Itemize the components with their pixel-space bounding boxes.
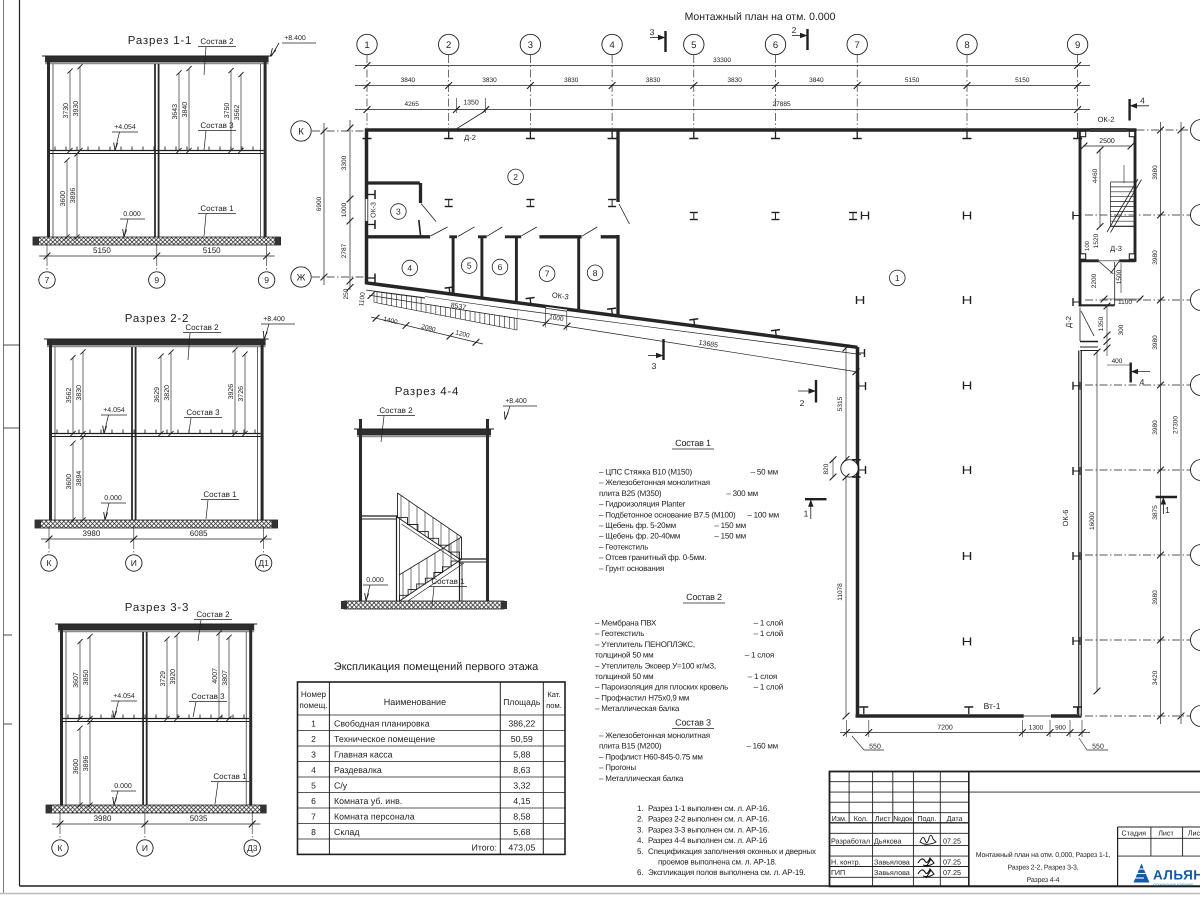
svg-text:1100: 1100 [1118, 299, 1132, 306]
svg-text:3840: 3840 [809, 77, 824, 84]
svg-text:Состав 1: Состав 1 [675, 438, 711, 448]
svg-text:6: 6 [773, 40, 778, 51]
svg-text:4265: 4265 [404, 101, 419, 108]
svg-text:4: 4 [311, 765, 316, 775]
svg-text:Свободная планировка: Свободная планировка [334, 718, 430, 728]
svg-text:3562: 3562 [234, 105, 241, 121]
svg-text:9: 9 [264, 275, 269, 285]
svg-text:1300: 1300 [1029, 725, 1044, 732]
svg-text:9: 9 [1075, 40, 1080, 51]
svg-text:пом.: пом. [546, 701, 562, 710]
svg-text:3980: 3980 [1152, 335, 1159, 350]
svg-text:Состав 3: Состав 3 [191, 692, 225, 701]
svg-text:3,32: 3,32 [513, 780, 530, 790]
svg-text:2: 2 [446, 40, 451, 51]
svg-text:Техническое помещение: Техническое помещение [334, 734, 435, 744]
svg-text:7200: 7200 [937, 725, 953, 732]
svg-text:4460: 4460 [1092, 168, 1099, 183]
svg-text:3980: 3980 [83, 529, 101, 538]
svg-text:Д1: Д1 [258, 558, 269, 568]
svg-text:Склад: Склад [334, 827, 359, 837]
svg-text:2500: 2500 [1099, 138, 1115, 145]
svg-text:3: 3 [528, 40, 533, 51]
svg-text:100: 100 [1084, 240, 1091, 251]
svg-text:Монтажный план на отм. 0.000: Монтажный план на отм. 0.000 [685, 11, 836, 23]
svg-text:Подп.: Подп. [917, 814, 936, 823]
svg-text:Состав 2: Состав 2 [686, 592, 722, 602]
svg-text:1: 1 [895, 273, 900, 283]
svg-text:3875: 3875 [1152, 505, 1159, 520]
svg-text:900: 900 [1055, 725, 1066, 732]
svg-text:16000: 16000 [1089, 512, 1096, 530]
svg-text:Состав 2: Состав 2 [196, 610, 230, 619]
svg-text:+8.400: +8.400 [505, 398, 527, 405]
svg-text:Состав 1: Состав 1 [200, 204, 234, 213]
svg-text:И: И [142, 843, 148, 853]
svg-text:3562: 3562 [66, 388, 73, 404]
svg-text:0.000: 0.000 [104, 495, 122, 502]
svg-text:1: 1 [311, 718, 316, 728]
svg-text:3300: 3300 [341, 155, 348, 170]
svg-text:3920: 3920 [170, 669, 177, 685]
svg-text:Состав 1: Состав 1 [213, 772, 247, 781]
svg-text:50,59: 50,59 [511, 734, 533, 744]
svg-text:толщиной 50 мм: толщиной 50 мм [595, 672, 653, 681]
svg-text:Лист: Лист [875, 814, 891, 823]
svg-text:2: 2 [311, 734, 316, 744]
svg-text:1: 1 [364, 40, 369, 51]
svg-text:+8.400: +8.400 [284, 35, 306, 42]
svg-text:4,15: 4,15 [513, 796, 530, 806]
svg-text:5,88: 5,88 [513, 749, 530, 759]
svg-text:3820: 3820 [164, 385, 171, 401]
svg-text:ГИП: ГИП [831, 868, 845, 877]
svg-text:– 150 мм: – 150 мм [714, 521, 746, 530]
svg-text:Разрез 4-4: Разрез 4-4 [395, 386, 459, 398]
svg-text:6900: 6900 [316, 196, 323, 211]
svg-text:2787: 2787 [341, 243, 348, 258]
svg-text:386,22: 386,22 [508, 718, 535, 728]
svg-text:7: 7 [545, 269, 550, 279]
svg-text:250: 250 [343, 288, 350, 299]
svg-text:Лис: Лис [1188, 829, 1200, 838]
svg-text:4: 4 [1140, 377, 1145, 387]
svg-text:07.25: 07.25 [943, 857, 961, 866]
svg-text:7: 7 [45, 275, 50, 285]
svg-text:С/у: С/у [334, 780, 348, 790]
svg-text:+4.054: +4.054 [103, 407, 125, 414]
svg-text:6085: 6085 [190, 529, 208, 538]
svg-text:Комната персонала: Комната персонала [334, 811, 415, 821]
svg-text:3726: 3726 [238, 386, 245, 402]
svg-text:3894: 3894 [76, 471, 83, 487]
svg-text:Завьялова: Завьялова [874, 857, 910, 866]
svg-text:Разрез 3-3 выполнен см. л. АР-: Разрез 3-3 выполнен см. л. АР-16. [648, 825, 769, 834]
svg-text:Разрез 3-3: Разрез 3-3 [125, 602, 189, 614]
svg-text:5150: 5150 [1015, 77, 1030, 84]
svg-text:– Отсев гранитный фр. 0-5мм.: – Отсев гранитный фр. 0-5мм. [599, 553, 706, 562]
svg-text:3: 3 [311, 749, 316, 759]
svg-text:1350: 1350 [463, 100, 479, 107]
svg-text:3607: 3607 [73, 672, 80, 688]
svg-text:+8.400: +8.400 [263, 316, 285, 323]
svg-text:– 1 слоя: – 1 слоя [745, 651, 774, 660]
svg-text:Дьякова: Дьякова [874, 837, 901, 846]
svg-text:плита В25 (М350): плита В25 (М350) [599, 489, 662, 498]
svg-text:3643: 3643 [172, 104, 179, 120]
svg-text:473,05: 473,05 [508, 842, 535, 852]
svg-text:Д3: Д3 [247, 843, 258, 853]
svg-text:– ЦПС Стяжка В10 (М150): – ЦПС Стяжка В10 (М150) [599, 468, 693, 477]
svg-text:– Мембрана ПВХ: – Мембрана ПВХ [595, 619, 657, 628]
svg-text:Дата: Дата [947, 814, 963, 823]
svg-text:Д-2: Д-2 [1064, 316, 1073, 328]
svg-text:– Щебень фр. 5-20мм: – Щебень фр. 5-20мм [599, 521, 676, 530]
svg-text:27300: 27300 [1173, 416, 1180, 434]
svg-text:8: 8 [964, 40, 969, 51]
svg-text:1500: 1500 [1116, 269, 1123, 284]
svg-text:Стадия: Стадия [1122, 829, 1147, 838]
svg-text:4: 4 [609, 40, 614, 51]
svg-text:Состав 2: Состав 2 [379, 406, 413, 415]
svg-text:6.: 6. [637, 868, 643, 877]
svg-text:Комната уб. инв.: Комната уб. инв. [334, 796, 402, 806]
svg-text:– Прогоны: – Прогоны [599, 763, 636, 772]
svg-text:Д-3: Д-3 [1110, 244, 1122, 253]
svg-text:33300: 33300 [713, 57, 731, 64]
svg-text:3600: 3600 [66, 474, 73, 490]
svg-text:3420: 3420 [1152, 670, 1159, 685]
svg-text:5: 5 [311, 780, 316, 790]
svg-text:– 1 слой: – 1 слой [754, 619, 783, 628]
svg-text:3830: 3830 [76, 385, 83, 401]
svg-text:ОК-3: ОК-3 [371, 202, 378, 218]
svg-text:8,63: 8,63 [513, 765, 530, 775]
svg-text:Н. контр.: Н. контр. [831, 857, 861, 866]
svg-text:ОК-6: ОК-6 [1061, 510, 1070, 527]
svg-text:4: 4 [1140, 96, 1145, 106]
svg-text:Разрез 1-1: Разрез 1-1 [128, 35, 192, 47]
svg-text:– Щебень фр. 20-40мм: – Щебень фр. 20-40мм [599, 532, 680, 541]
svg-text:3.: 3. [637, 825, 643, 834]
svg-text:ОК-2: ОК-2 [1098, 115, 1115, 124]
svg-text:– Геотекстиль: – Геотекстиль [595, 629, 644, 638]
svg-text:3: 3 [650, 27, 655, 37]
svg-text:400: 400 [1112, 358, 1123, 365]
svg-text:3730: 3730 [63, 103, 70, 119]
svg-text:Ж: Ж [297, 272, 306, 283]
svg-text:0.000: 0.000 [123, 211, 141, 218]
svg-text:5035: 5035 [190, 814, 208, 823]
svg-text:3830: 3830 [564, 77, 579, 84]
svg-text:– 1 слой: – 1 слой [754, 629, 783, 638]
svg-text:550: 550 [1092, 744, 1104, 751]
svg-text:5150: 5150 [905, 77, 920, 84]
svg-text:3980: 3980 [1152, 165, 1159, 180]
svg-text:– Профнастил Н75х0,9 мм: – Профнастил Н75х0,9 мм [595, 693, 689, 702]
svg-text:3600: 3600 [60, 191, 67, 207]
svg-text:– Утеплитель ПЕНОПЛЭКС,: – Утеплитель ПЕНОПЛЭКС, [595, 640, 695, 649]
svg-text:Номер: Номер [301, 690, 327, 699]
svg-text:Итого:: Итого: [472, 842, 498, 852]
svg-text:плита В15 (М200): плита В15 (М200) [599, 742, 662, 751]
svg-text:– 100 мм: – 100 мм [747, 510, 779, 519]
svg-text:3729: 3729 [160, 671, 167, 687]
svg-text:7: 7 [855, 40, 860, 51]
svg-text:+4.054: +4.054 [114, 124, 136, 131]
svg-text:– Гидроизоляция Planter: – Гидроизоляция Planter [599, 500, 686, 509]
svg-text:– Металлическая балка: – Металлическая балка [599, 774, 684, 783]
svg-text:6: 6 [498, 262, 503, 272]
svg-text:5.: 5. [637, 847, 643, 856]
svg-text:3980: 3980 [1152, 590, 1159, 605]
svg-text:Наименование: Наименование [384, 697, 446, 707]
svg-text:– Грунт основания: – Грунт основания [599, 564, 664, 573]
svg-text:– Железобетонная монолитная: – Железобетонная монолитная [599, 731, 710, 740]
svg-text:2: 2 [800, 398, 805, 408]
svg-text:Разрез 2-2, Разрез 3-3,: Разрез 2-2, Разрез 3-3, [1007, 865, 1078, 872]
svg-text:3980: 3980 [94, 814, 112, 823]
svg-text:1520: 1520 [1093, 233, 1100, 248]
svg-text:Завьялова: Завьялова [874, 868, 910, 877]
svg-text:Вт-1: Вт-1 [984, 701, 1001, 711]
svg-text:3830: 3830 [727, 77, 742, 84]
svg-text:3926: 3926 [228, 384, 235, 400]
svg-text:3930: 3930 [73, 101, 80, 117]
svg-text:0.000: 0.000 [366, 577, 384, 584]
svg-text:Главная касса: Главная касса [334, 749, 393, 759]
svg-text:К: К [47, 558, 52, 568]
svg-text:Состав 2: Состав 2 [185, 323, 219, 332]
svg-text:– 150 мм: – 150 мм [714, 532, 746, 541]
svg-text:Разрез 4-4 выполнен см. л. АР-: Разрез 4-4 выполнен см. л. АР-16 [648, 836, 768, 845]
svg-text:1: 1 [804, 509, 809, 519]
svg-text:Спецификация заполнения оконны: Спецификация заполнения оконных и дверны… [648, 847, 816, 856]
svg-text:07.25: 07.25 [943, 868, 961, 877]
svg-text:– 300 мм: – 300 мм [726, 489, 758, 498]
svg-text:Раздевалка: Раздевалка [334, 765, 382, 775]
svg-text:3850: 3850 [83, 670, 90, 686]
svg-text:3830: 3830 [482, 77, 497, 84]
svg-text:3629: 3629 [154, 387, 161, 403]
svg-text:4007: 4007 [212, 668, 219, 684]
svg-text:4.: 4. [637, 836, 643, 845]
svg-text:5150: 5150 [203, 246, 221, 255]
svg-text:– 1 слоя: – 1 слоя [748, 672, 777, 681]
svg-text:№док: №док [893, 814, 913, 823]
svg-text:9: 9 [154, 275, 159, 285]
svg-text:1.: 1. [637, 804, 643, 813]
svg-text:2.: 2. [637, 815, 643, 824]
svg-text:Состав 3: Состав 3 [675, 718, 711, 728]
svg-text:3807: 3807 [222, 670, 229, 686]
svg-text:Разрез 2-2: Разрез 2-2 [125, 313, 189, 325]
svg-text:Разрез 4-4: Разрез 4-4 [1027, 877, 1060, 884]
svg-text:7: 7 [311, 811, 316, 821]
svg-text:1000: 1000 [341, 202, 348, 217]
svg-text:11078: 11078 [837, 583, 844, 601]
svg-text:4: 4 [407, 263, 412, 273]
svg-text:Экспликация помещений первого: Экспликация помещений первого этажа [334, 661, 539, 673]
svg-text:Состав 1: Состав 1 [431, 577, 465, 586]
svg-text:3: 3 [652, 361, 657, 371]
svg-text:550: 550 [869, 744, 881, 751]
svg-text:толщиной 50 мм: толщиной 50 мм [595, 651, 653, 660]
svg-text:6: 6 [311, 796, 316, 806]
svg-text:Состав 3: Состав 3 [200, 121, 234, 130]
svg-text:– Пароизоляция для плоских кро: – Пароизоляция для плоских кровель [595, 683, 728, 692]
svg-text:300: 300 [1118, 324, 1125, 335]
svg-text:5150: 5150 [93, 246, 111, 255]
svg-text:3830: 3830 [646, 77, 661, 84]
svg-text:2: 2 [513, 172, 518, 182]
svg-text:1: 1 [1165, 505, 1170, 515]
svg-text:5: 5 [691, 40, 696, 51]
svg-text:Разработал: Разработал [831, 837, 870, 846]
svg-text:3: 3 [396, 207, 401, 217]
svg-text:1350: 1350 [1098, 316, 1105, 331]
svg-text:8: 8 [311, 827, 316, 837]
svg-text:Состав 2: Состав 2 [200, 37, 234, 46]
svg-text:3600: 3600 [73, 759, 80, 775]
svg-text:3980: 3980 [1152, 420, 1159, 435]
svg-text:Кол.: Кол. [854, 814, 868, 823]
svg-text:Экспликация полов выполнена см: Экспликация полов выполнена см. л. АР-19… [648, 868, 805, 877]
svg-text:К: К [298, 126, 304, 137]
svg-text:И: И [131, 558, 137, 568]
svg-text:8,58: 8,58 [513, 811, 530, 821]
svg-text:Площадь: Площадь [503, 697, 541, 707]
svg-text:5: 5 [467, 261, 472, 271]
svg-text:проемов выполнена см. л. АР-18: проемов выполнена см. л. АР-18. [658, 858, 777, 867]
svg-text:3896: 3896 [70, 188, 77, 204]
svg-text:– Железобетонная монолитная: – Железобетонная монолитная [599, 478, 710, 487]
svg-text:07.25: 07.25 [943, 837, 961, 846]
svg-text:– Профлист Н60-845-0.75 мм: – Профлист Н60-845-0.75 мм [599, 752, 703, 761]
svg-text:Монтажный план на отм. 0,000,: Монтажный план на отм. 0,000, Разрез 1-1… [976, 851, 1111, 859]
svg-text:– Металлическая балка: – Металлическая балка [595, 704, 680, 713]
svg-text:0.000: 0.000 [114, 783, 132, 790]
svg-text:АЛЬЯНС: АЛЬЯНС [1153, 868, 1200, 883]
svg-text:2: 2 [792, 25, 797, 35]
svg-text:820: 820 [823, 463, 830, 474]
svg-text:Разрез 1-1 выполнен см. л. АР-: Разрез 1-1 выполнен см. л. АР-16. [648, 804, 769, 813]
svg-text:3840: 3840 [401, 77, 416, 84]
svg-text:– 160 мм: – 160 мм [746, 742, 778, 751]
svg-text:5,68: 5,68 [513, 827, 530, 837]
svg-text:Кат.: Кат. [547, 690, 560, 699]
svg-text:2200: 2200 [1091, 273, 1098, 288]
svg-text:8: 8 [593, 268, 598, 278]
svg-text:– Утеплитель Эковер У=100 кг/м: – Утеплитель Эковер У=100 кг/м3, [595, 661, 716, 670]
svg-text:Изм.: Изм. [832, 814, 847, 823]
svg-text:+4.054: +4.054 [113, 693, 135, 700]
svg-text:– 1 слой: – 1 слой [754, 683, 783, 692]
svg-text:– Геотекстиль: – Геотекстиль [599, 542, 648, 551]
svg-text:3750: 3750 [224, 103, 231, 119]
svg-text:3896: 3896 [83, 756, 90, 772]
svg-text:5315: 5315 [837, 396, 844, 411]
svg-text:Состав 3: Состав 3 [186, 408, 220, 417]
svg-text:3840: 3840 [182, 102, 189, 118]
svg-text:К: К [58, 843, 63, 853]
svg-text:Состав 1: Состав 1 [203, 490, 237, 499]
svg-text:Д-2: Д-2 [464, 133, 476, 142]
svg-text:помещ.: помещ. [299, 701, 327, 710]
svg-text:27885: 27885 [773, 101, 791, 108]
svg-text:строительная компания: строительная компания [1153, 883, 1193, 887]
svg-text:– 50 мм: – 50 мм [751, 468, 778, 477]
svg-text:3980: 3980 [1152, 250, 1159, 265]
svg-text:Лист: Лист [1158, 829, 1174, 838]
svg-text:Разрез 2-2 выполнен см. л. АР-: Разрез 2-2 выполнен см. л. АР-16. [648, 815, 769, 824]
svg-text:– Подбетонное основание В7.5 (: – Подбетонное основание В7.5 (М100) [599, 510, 736, 519]
